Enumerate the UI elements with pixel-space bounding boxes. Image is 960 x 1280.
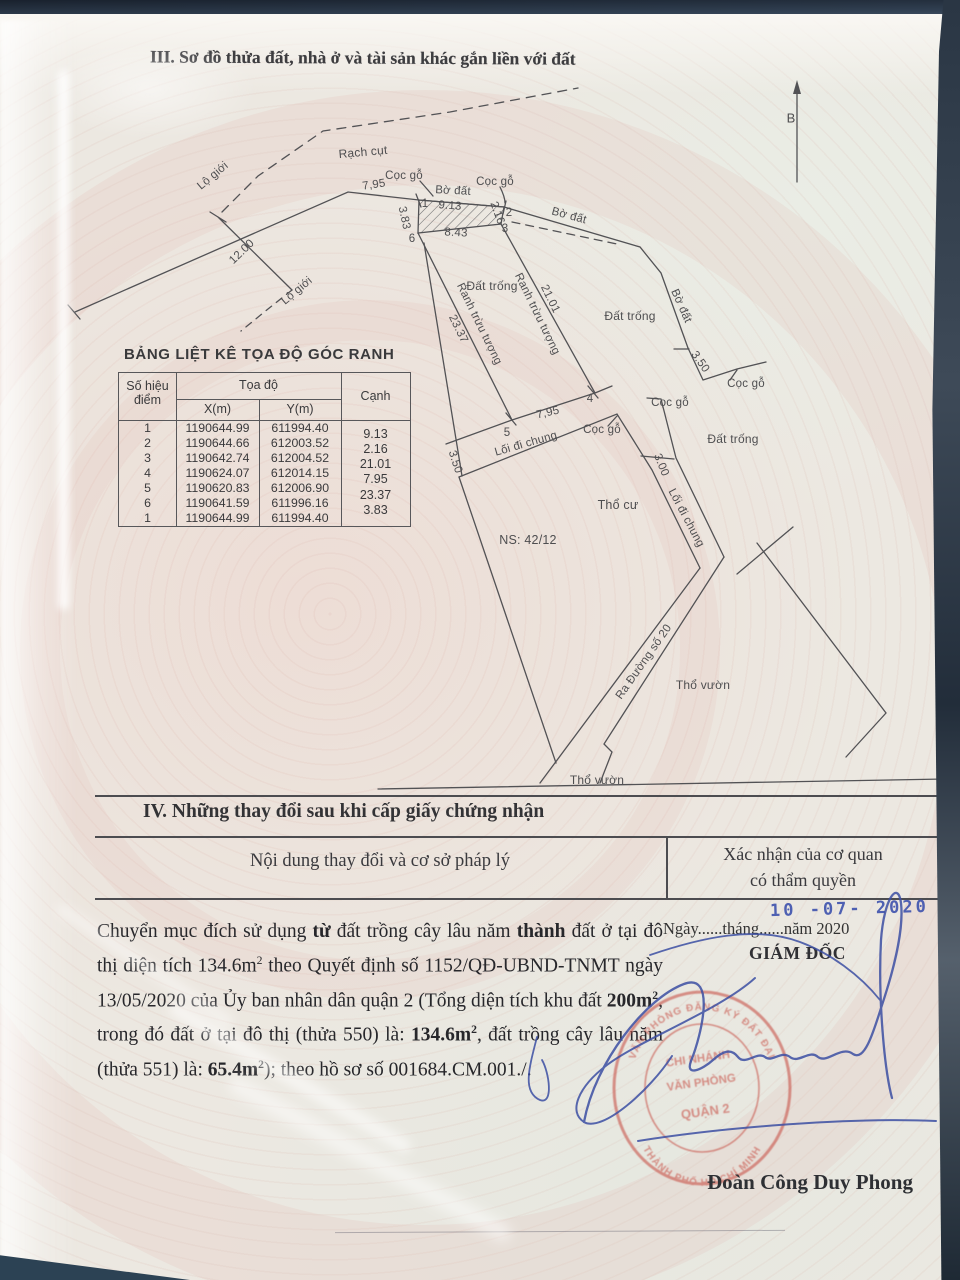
col-header-x: X(m) (176, 402, 259, 416)
amendment-text-segment: 134.6m (411, 1025, 471, 1046)
edge-value: 23.37 (341, 488, 410, 502)
diagram-label: Cọc gỗ (385, 170, 423, 182)
edge-value: 2.16 (341, 442, 410, 456)
coord-table-title: BẢNG LIỆT KÊ TỌA ĐỘ GÓC RANH (124, 346, 394, 363)
amendment-text-segment: Chuyển mục đích sử dụng (97, 921, 312, 942)
amendment-text-segment: đất trồng cây lâu năm (331, 921, 517, 942)
date-stamp: 10 -07- 2020 (770, 897, 929, 921)
table-row: 11190644.99611994.40 (119, 511, 341, 526)
table-row: 11190644.99611994.40 (119, 420, 341, 435)
edge-value: 3.83 (341, 503, 410, 517)
header-right-line1: Xác nhận của cơ quan (666, 841, 940, 867)
diagram-label: Đất trống (466, 279, 517, 293)
diagram-label: Bờ đất (435, 184, 471, 198)
diagram-label: Đất trống (707, 432, 758, 446)
diagram-label: Thổ cư (598, 498, 639, 512)
diagram-label: Cọc gỗ (476, 176, 514, 188)
amendment-text-segment: 200m (607, 990, 653, 1011)
table-row: 41190624.07612014.15 (119, 465, 341, 480)
section4-top-rule (95, 795, 940, 797)
edge-value: 9.13 (341, 427, 410, 441)
diagram-label: Thổ vườn (676, 678, 730, 692)
col-header-coords: Tọa độ (176, 378, 341, 392)
amendment-text-segment: từ (312, 921, 330, 942)
section3-title: III. Sơ đồ thửa đất, nhà ở và tài sản kh… (150, 46, 750, 70)
edge-value: 21.01 (341, 457, 410, 471)
amendment-col-header-left: Nội dung thay đổi và cơ sở pháp lý (95, 851, 665, 872)
diagram-label: NS: 42/12 (499, 533, 556, 547)
header-right-line2: có thẩm quyền (666, 867, 940, 893)
col-header-y: Y(m) (259, 402, 341, 416)
diagram-label: 8.43 (444, 226, 468, 239)
coordinate-rows: 11190644.99611994.4021190644.66612003.52… (119, 420, 341, 526)
amendment-text-segment: 65.4m (208, 1059, 258, 1080)
section4-rule2 (95, 836, 940, 838)
coordinate-table: Số hiệuđiểm Tọa độ X(m) Y(m) Cạnh 111906… (118, 372, 411, 527)
certificate-photo: III. Sơ đồ thửa đất, nhà ở và tài sản kh… (0, 0, 960, 1280)
amendment-text-segment: thành (517, 921, 566, 942)
diagram-label: 6 (409, 233, 416, 245)
edge-value: 7.95 (341, 472, 410, 486)
director-title: GIÁM ĐỐC (749, 943, 846, 964)
diagram-label: 2 (506, 207, 513, 219)
table-row: 31190642.74612004.52 (119, 450, 341, 465)
diagram-label: Thổ vườn (570, 773, 624, 787)
amendment-text-segment: ); theo hồ sơ số 001684.CM.001./. (264, 1059, 532, 1080)
amendment-col-header-right: Xác nhận của cơ quan có thẩm quyền (666, 841, 940, 893)
table-row: 21190644.66612003.52 (119, 435, 341, 450)
col-header-point: Số hiệuđiểm (119, 379, 176, 407)
diagram-label: B (787, 111, 796, 126)
diagram-label: Đất trống (604, 309, 655, 323)
diagram-label: 9.13 (438, 199, 462, 213)
section4-title: IV. Những thay đổi sau khi cấp giấy chứn… (143, 801, 544, 823)
amendment-text: Chuyển mục đích sử dụng từ đất trồng cây… (97, 917, 663, 1084)
diagram-label: 3 (502, 223, 509, 235)
col-header-edge: Cạnh (341, 389, 410, 403)
diagram-label: Cọc gỗ (727, 378, 765, 390)
date-line: Ngày......tháng......năm 2020 (663, 919, 923, 939)
signer-name: Đoàn Công Duy Phong (685, 1170, 935, 1195)
diagram-label: 5 (504, 427, 511, 439)
table-row: 61190641.59611996.16 (119, 495, 341, 510)
diagram-label: 4 (587, 393, 594, 405)
table-gridline (176, 399, 341, 400)
diagram-label: Cọc gỗ (583, 424, 621, 436)
table-row: 51190620.83612006.90 (119, 480, 341, 495)
diagram-label: 1 (422, 198, 429, 210)
diagram-label: Cọc gỗ (651, 397, 689, 409)
